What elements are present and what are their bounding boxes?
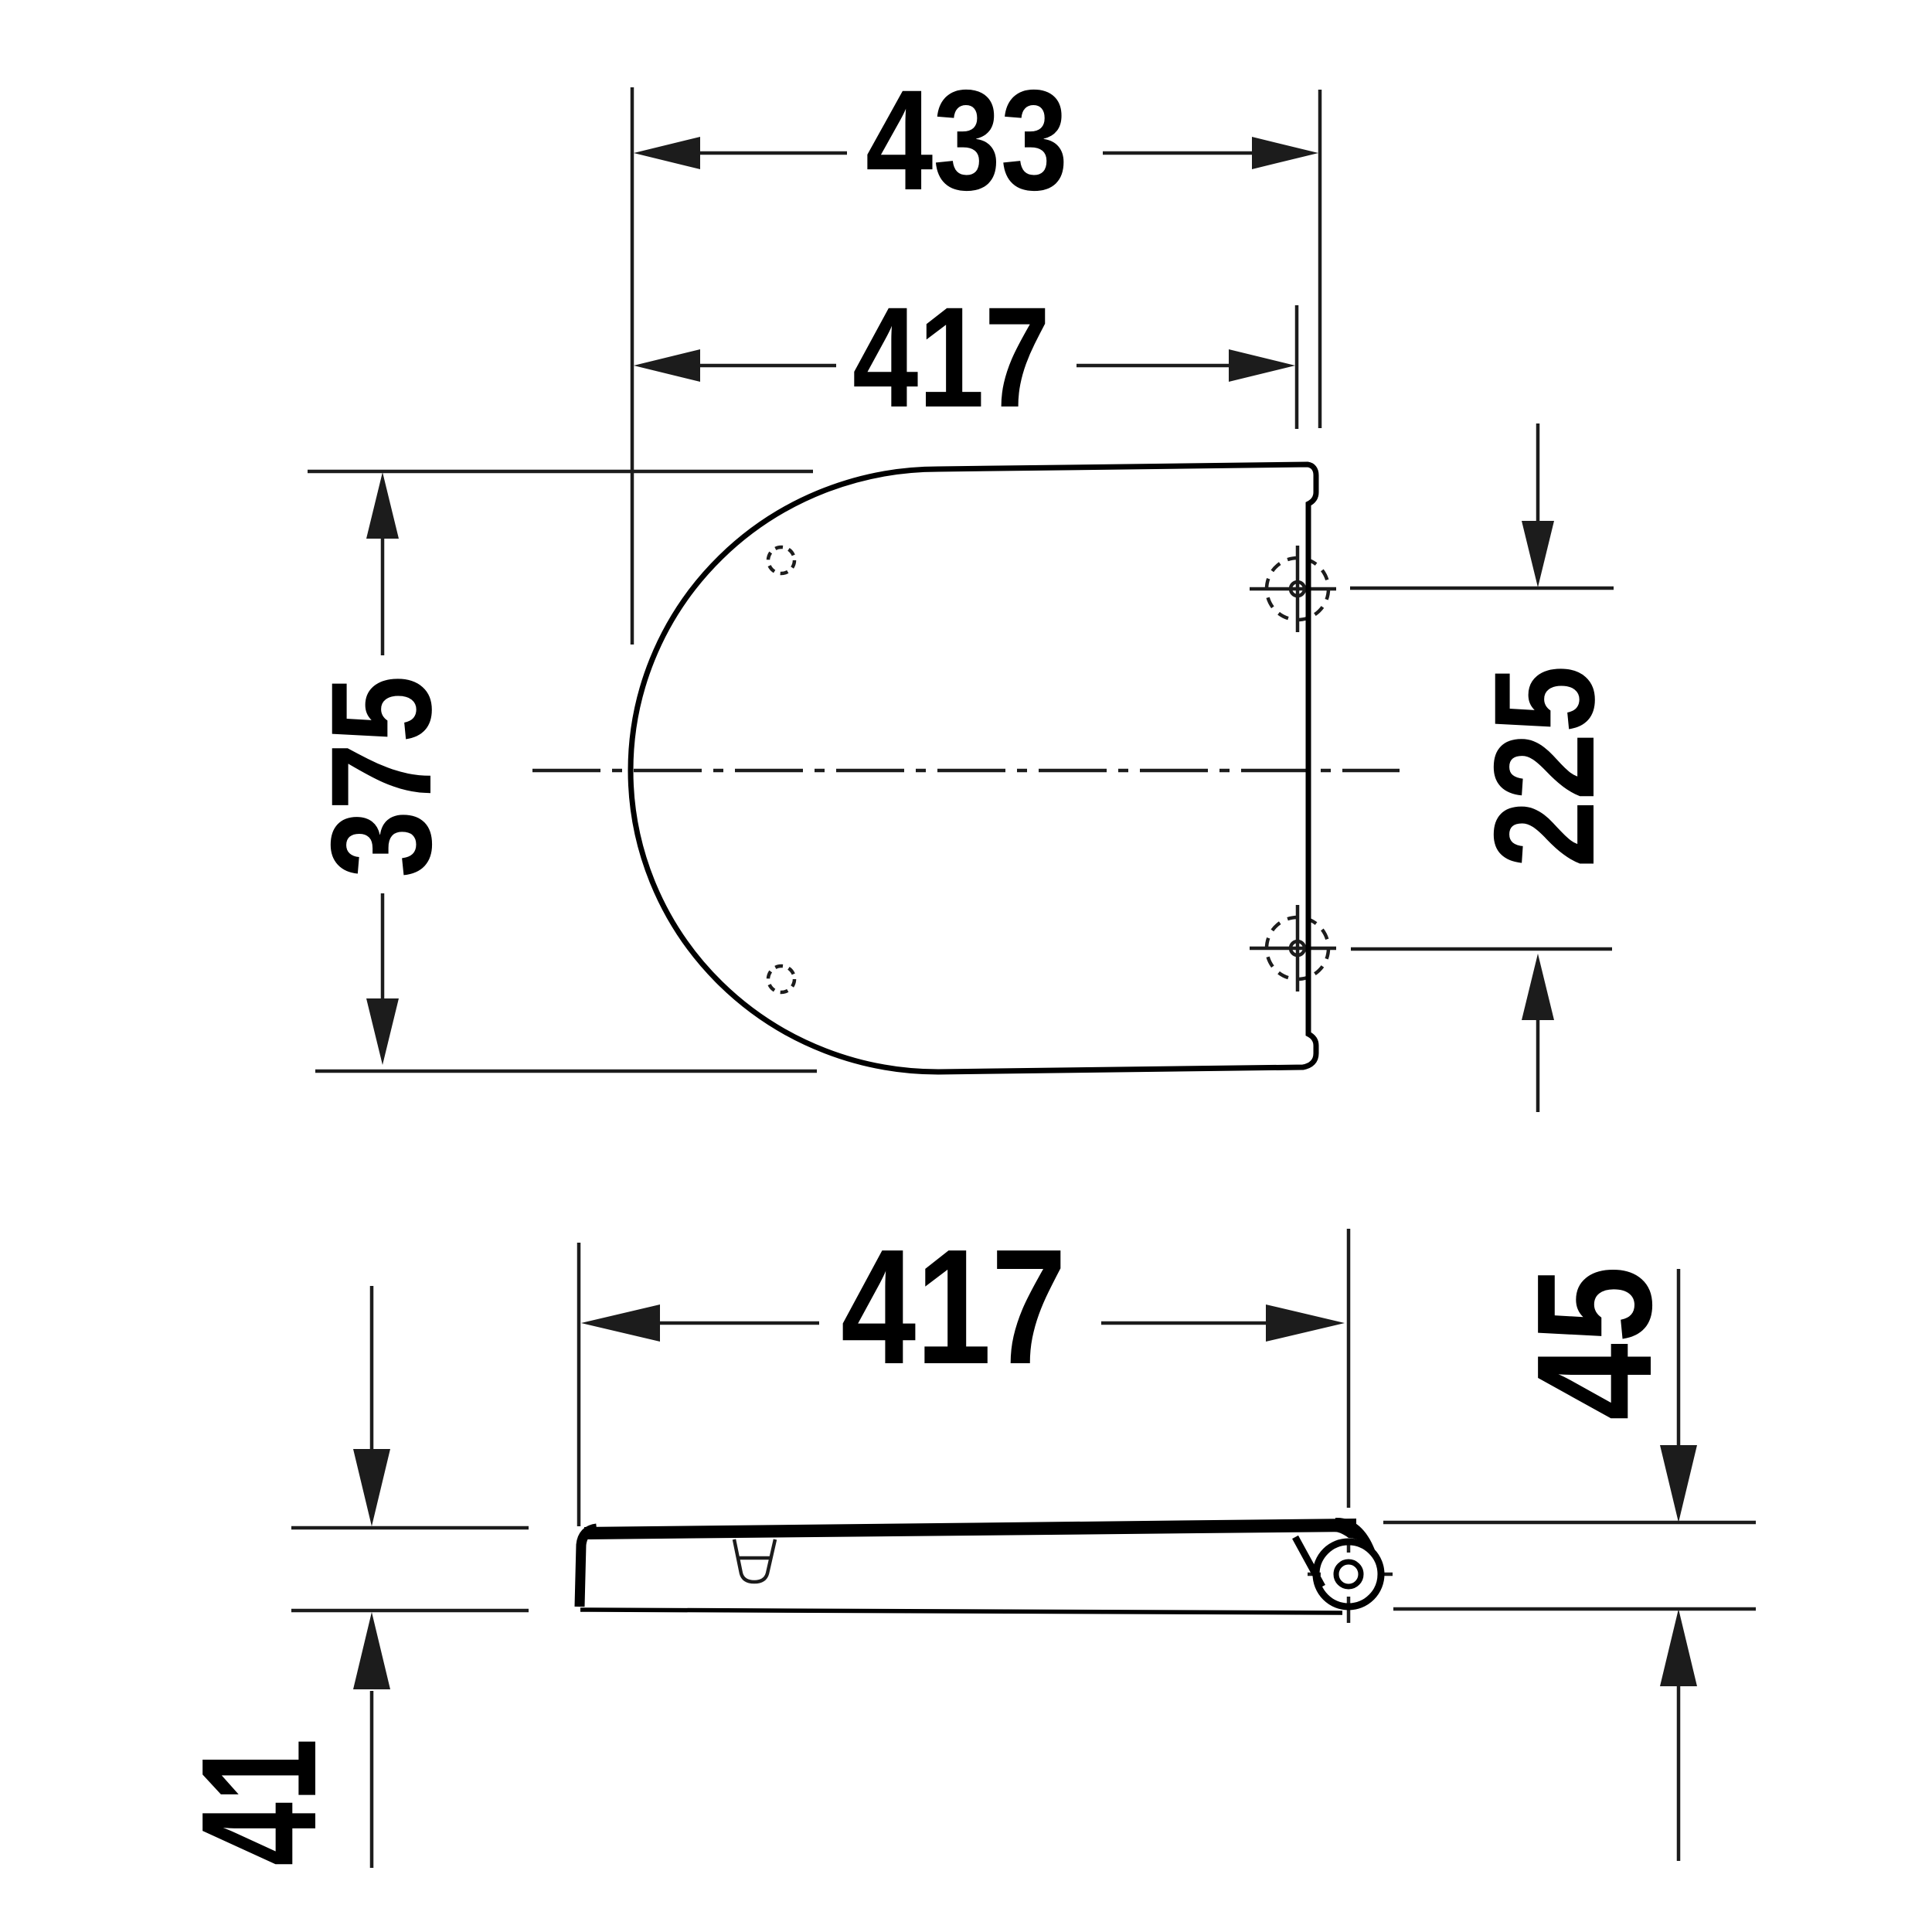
svg-text:433: 433: [866, 61, 1068, 220]
svg-text:45: 45: [1502, 1266, 1685, 1420]
svg-text:417: 417: [841, 1215, 1066, 1398]
svg-text:375: 375: [302, 675, 461, 878]
svg-text:417: 417: [852, 278, 1050, 437]
svg-text:225: 225: [1465, 665, 1624, 868]
svg-text:41: 41: [167, 1739, 350, 1866]
